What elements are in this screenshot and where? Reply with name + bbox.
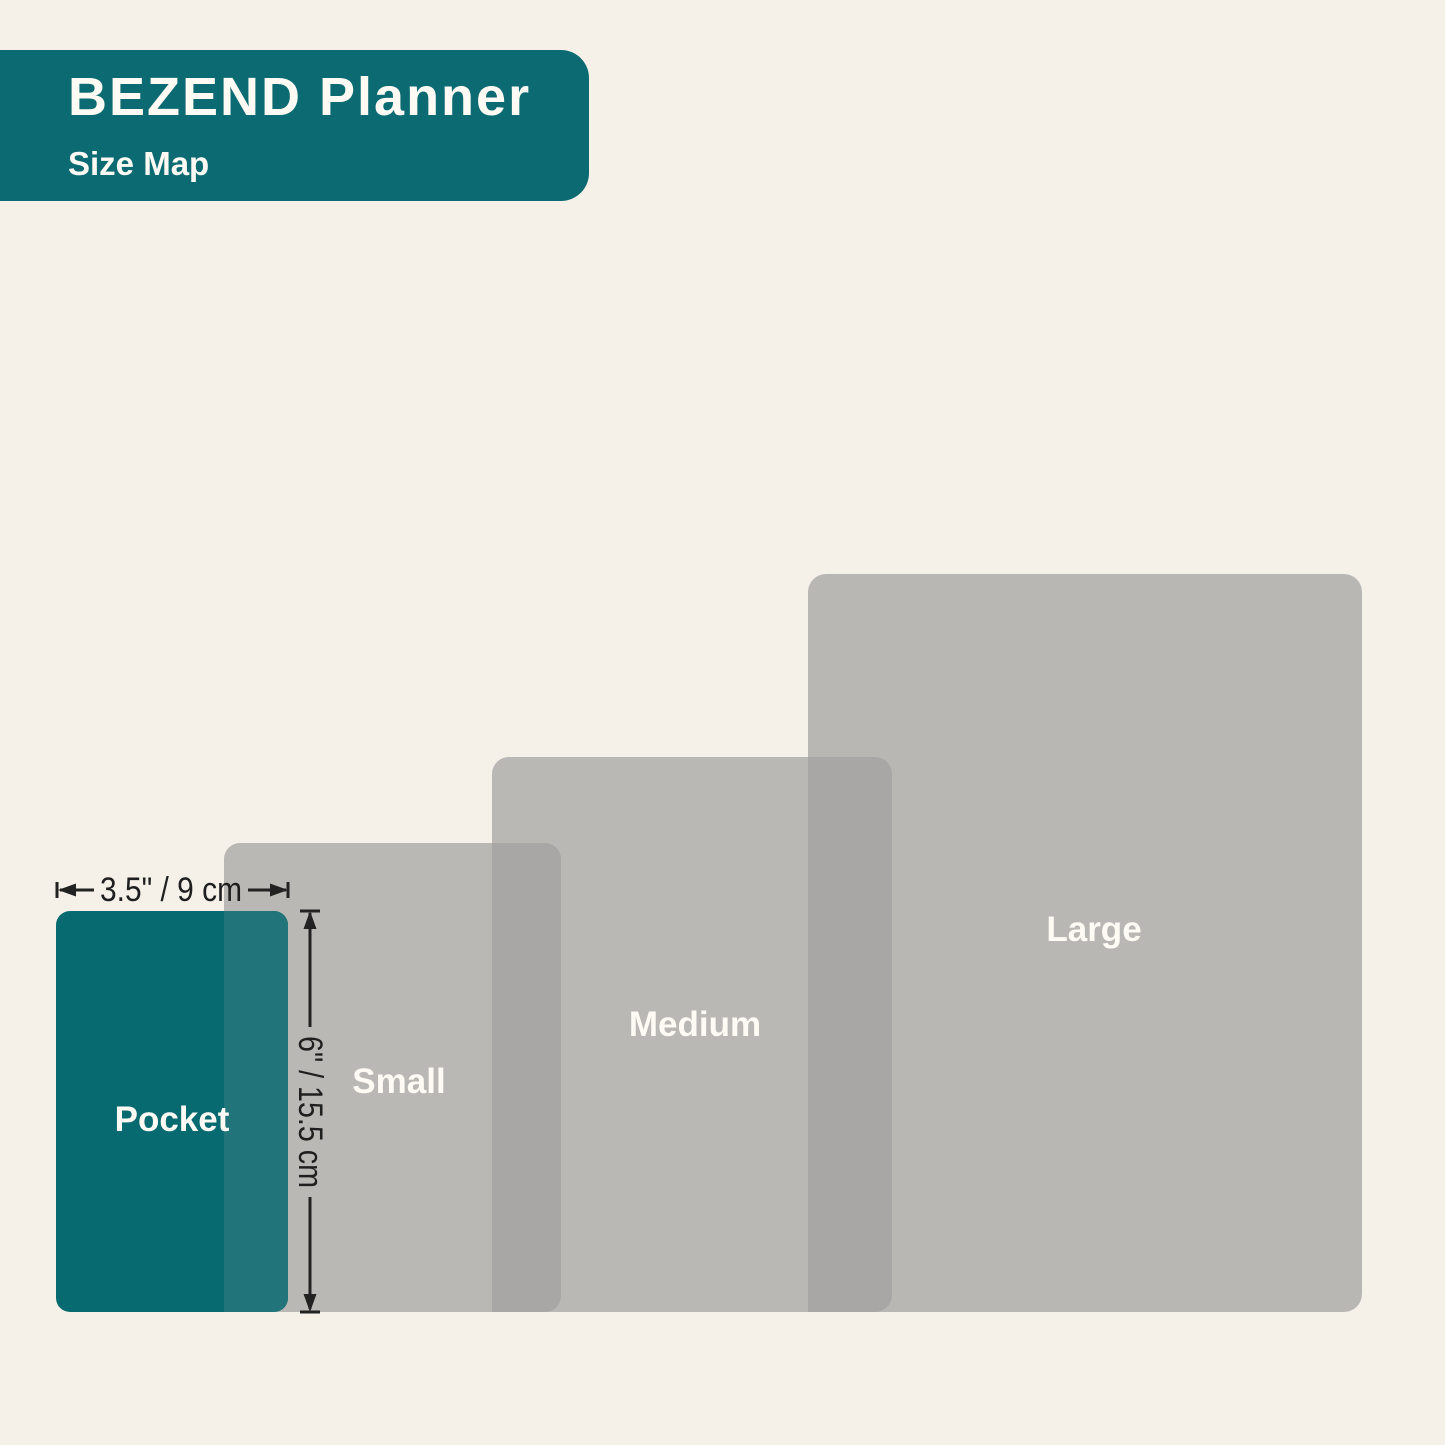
svg-text:6" / 15.5 cm: 6" / 15.5 cm	[291, 1036, 329, 1188]
svg-text:3.5" / 9 cm: 3.5" / 9 cm	[100, 871, 242, 909]
